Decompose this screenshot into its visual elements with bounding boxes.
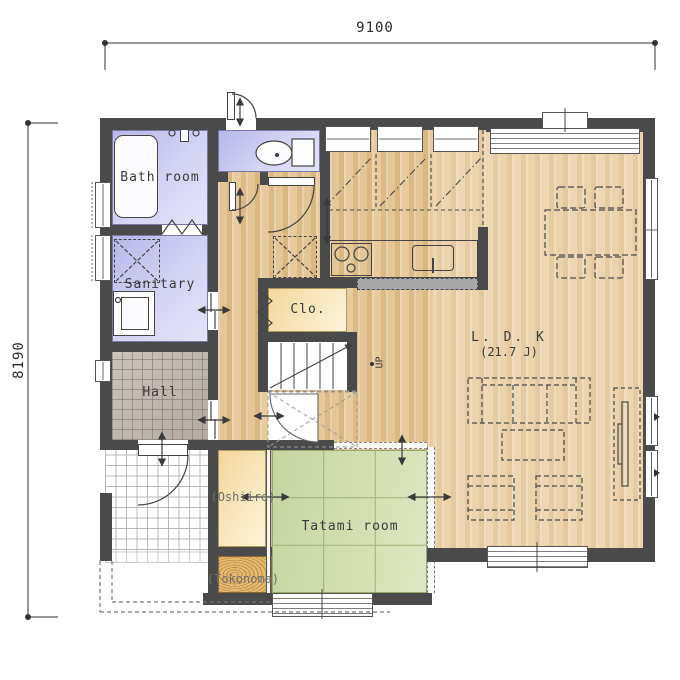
stairs-up-label: UP (375, 351, 386, 375)
tv (618, 402, 628, 486)
dining-chair-4 (595, 257, 623, 278)
front-door-arc (138, 455, 188, 505)
sanitary-faucet (116, 298, 121, 303)
vent-triangle-2 (654, 469, 660, 477)
dining-chair-3 (557, 257, 585, 278)
floor-plan: 9100 8190 Bath room Sanitary Hall Clo. U… (0, 0, 680, 680)
back-door-arc (232, 94, 256, 118)
plan-linework (0, 0, 680, 680)
tatami-room-label: Tatami room (295, 519, 405, 534)
closet-label: Clo. (270, 302, 346, 317)
bath-room-label: Bath room (112, 170, 208, 185)
dining-table (545, 210, 636, 255)
kitchen-upper-cabinets (322, 130, 483, 227)
sanitary-label: Sanitary (112, 277, 208, 292)
fridge-cross (275, 238, 315, 276)
oshiire-label: (Oshiire) (195, 490, 291, 504)
kitchen-door-arc (268, 186, 314, 232)
stove-burner-3 (347, 264, 355, 272)
sofa-set (468, 378, 640, 520)
dining-chair-1 (557, 187, 585, 208)
coffee-table (502, 430, 564, 460)
up-leader-dot (370, 362, 374, 366)
dimension-left-label: 8190 (11, 330, 27, 390)
stairs-steps (268, 343, 357, 391)
tokonoma-label: (Tokonoma) (193, 572, 293, 586)
armchair-1 (468, 476, 514, 520)
stove-burner-1 (335, 247, 349, 261)
ldk-size-label: (21.7 J) (454, 345, 564, 359)
sliding-door-panels (211, 293, 215, 439)
bath-folding-door (162, 220, 202, 234)
toilet-door-arc (232, 184, 258, 210)
porch-outline (100, 561, 390, 612)
vent-triangle-1 (654, 413, 660, 421)
toilet-tank (292, 139, 314, 166)
toilet-drain (276, 154, 279, 157)
bath-faucet-knob-2 (193, 130, 199, 136)
dining-set (545, 187, 636, 278)
washer-cross (116, 241, 158, 281)
bath-faucet-knob-1 (169, 130, 175, 136)
dimension-line-left (26, 121, 59, 620)
toilet-bowl (256, 141, 292, 165)
ldk-label: L. D. K (454, 330, 564, 345)
stairs-up-line (270, 345, 351, 388)
stove-burner-2 (354, 247, 368, 261)
armchair-2 (536, 476, 582, 520)
dimension-line-top (103, 41, 658, 71)
dining-chair-2 (595, 187, 623, 208)
dimension-top-label: 9100 (325, 20, 425, 36)
hall-label: Hall (112, 385, 208, 400)
